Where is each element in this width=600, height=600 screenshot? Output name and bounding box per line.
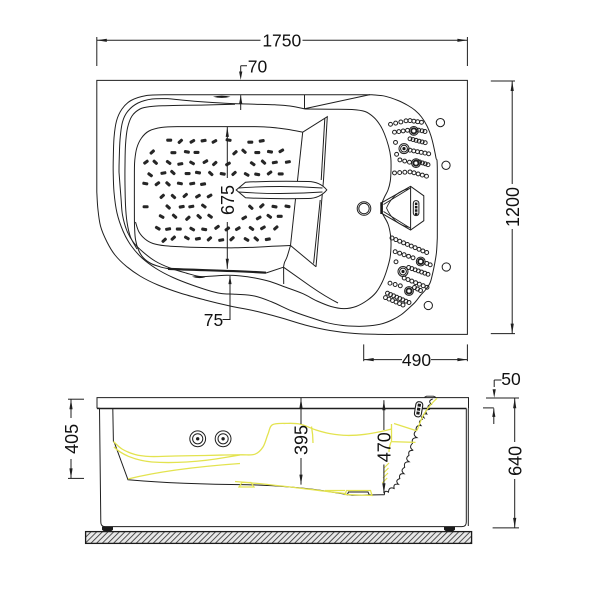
svg-text:50: 50 xyxy=(501,369,521,389)
svg-text:395: 395 xyxy=(292,425,312,455)
svg-text:470: 470 xyxy=(375,432,395,462)
svg-text:75: 75 xyxy=(204,310,223,330)
svg-text:70: 70 xyxy=(248,56,268,76)
svg-text:405: 405 xyxy=(62,424,82,454)
svg-text:640: 640 xyxy=(505,446,525,476)
svg-text:1200: 1200 xyxy=(503,187,523,227)
svg-text:490: 490 xyxy=(402,350,431,370)
svg-text:1750: 1750 xyxy=(262,30,301,50)
svg-text:675: 675 xyxy=(218,185,238,215)
